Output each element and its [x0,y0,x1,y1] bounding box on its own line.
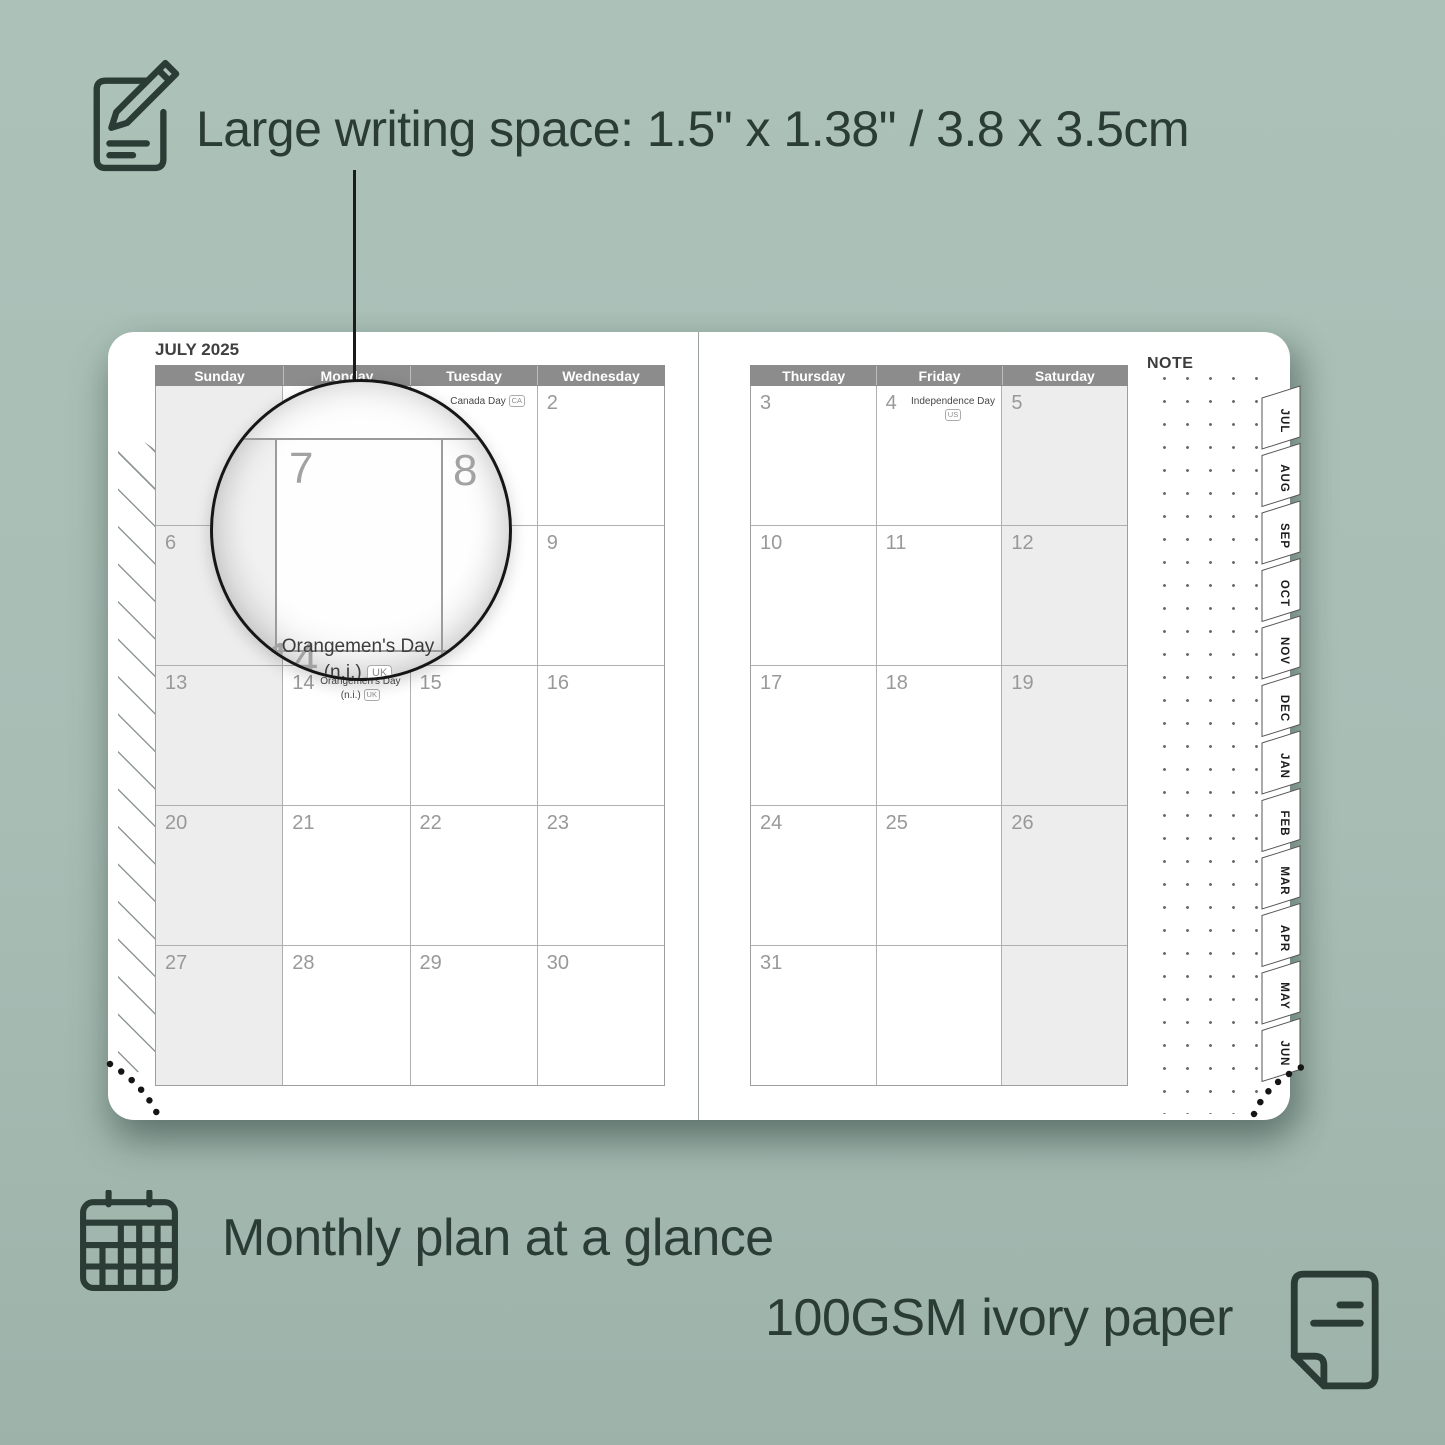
note-pencil-icon [84,56,182,176]
feature-monthly-plan-label: Monthly plan at a glance [222,1208,774,1268]
magnified-day-number: 8 [453,446,477,496]
magnified-shaded-column [213,438,275,678]
perforation-arc-left [110,1064,160,1120]
paper-icon [1276,1268,1390,1392]
country-badge: UK [367,665,392,681]
product-image-canvas: Large writing space: 1.5" x 1.38" / 3.8 … [0,0,1445,1445]
magnified-holiday-label: Orangemen's Day (n.i.) UK [275,634,441,681]
magnified-day-number: 7 [289,444,313,494]
magnified-grid-line [213,438,509,440]
feature-paper-label: 100GSM ivory paper [765,1288,1233,1348]
magnified-grid-line [441,438,443,678]
callout-line [353,170,356,384]
zoom-circle: 7 8 14 Orangemen's Day (n.i.) UK [210,379,512,681]
calendar-icon [78,1190,180,1292]
holiday-line1: Orangemen's Day [282,636,435,657]
feature-writing-space-label: Large writing space: 1.5" x 1.38" / 3.8 … [196,100,1189,158]
